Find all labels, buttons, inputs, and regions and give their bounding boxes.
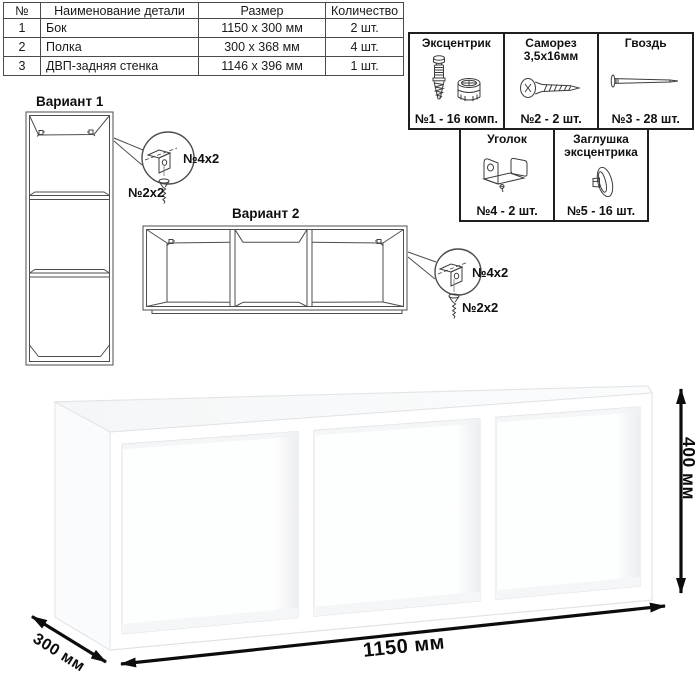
compartment-opening [496, 407, 640, 600]
nail-icon [608, 50, 684, 112]
cell-num: 3 [4, 57, 41, 76]
hardware-item-count: №3 - 28 шт. [612, 112, 680, 126]
hardware-panel-row2: Уголок №4 - 2 шт. Заглушка эксцентрика [459, 128, 649, 222]
hardware-item-title: Саморез 3,5х16мм [507, 37, 596, 63]
corner-bracket-icon [476, 146, 538, 204]
cam-bolt-icon [423, 50, 489, 112]
cell-num: 2 [4, 38, 41, 57]
hardware-item-title: Гвоздь [625, 37, 667, 50]
variant2-drawing [140, 222, 580, 332]
header-num: № [4, 3, 41, 19]
hardware-item-nail: Гвоздь №3 - 28 шт. [597, 32, 694, 130]
cell-num: 1 [4, 19, 41, 38]
table-header-row: № Наименование детали Размер Количество [4, 3, 404, 19]
variant2-callout-bracket-label: №4х2 [472, 265, 508, 280]
header-qty: Количество [326, 3, 404, 19]
table-row: 3 ДВП-задняя стенка 1146 x 396 мм 1 шт. [4, 57, 404, 76]
compartment-opening [122, 432, 298, 634]
hardware-item-cam: Эксцентрик [408, 32, 505, 130]
hardware-item-count: №2 - 2 шт. [520, 112, 581, 126]
cell-size: 1146 x 396 мм [199, 57, 326, 76]
callout-bracket-icon [438, 262, 468, 286]
hardware-item-title: Уголок [487, 133, 527, 146]
variant1-title: Вариант 1 [36, 94, 103, 109]
hardware-item-count: №5 - 16 шт. [567, 204, 635, 218]
screw-icon [519, 63, 583, 112]
hardware-item-screw: Саморез 3,5х16мм №2 - 2 шт. [503, 32, 600, 130]
compartment-opening [314, 418, 480, 616]
variant2-callout-screw-label: №2х2 [462, 300, 498, 315]
header-name: Наименование детали [41, 3, 199, 19]
assembly-instruction-sheet: № Наименование детали Размер Количество … [0, 0, 700, 690]
table-row: 2 Полка 300 x 368 мм 4 шт. [4, 38, 404, 57]
cell-name: Бок [41, 19, 199, 38]
cam-cap-icon [584, 159, 618, 204]
cell-name: Полка [41, 38, 199, 57]
parts-table: № Наименование детали Размер Количество … [3, 2, 404, 76]
variant2-title: Вариант 2 [232, 206, 299, 221]
hardware-item-cap: Заглушка эксцентрика №5 - 16 шт. [553, 128, 649, 222]
variant1-callout-bracket-label: №4х2 [183, 151, 219, 166]
callout-screw-icon [449, 294, 459, 319]
cell-size: 300 x 368 мм [199, 38, 326, 57]
variant1-callout-screw-label: №2х2 [128, 185, 164, 200]
table-row: 1 Бок 1150 x 300 мм 2 шт. [4, 19, 404, 38]
bracket-mark-icon [37, 130, 95, 137]
hardware-item-title: Заглушка эксцентрика [557, 133, 645, 159]
cabinet-3d-drawing [0, 372, 700, 690]
hardware-item-count: №1 - 16 комп. [415, 112, 498, 126]
header-size: Размер [199, 3, 326, 19]
callout-bracket-icon [145, 148, 177, 173]
cell-qty: 1 шт. [326, 57, 404, 76]
hardware-item-count: №4 - 2 шт. [476, 204, 537, 218]
hardware-item-bracket: Уголок №4 - 2 шт. [459, 128, 555, 222]
cell-name: ДВП-задняя стенка [41, 57, 199, 76]
hardware-panel-row1: Эксцентрик [408, 32, 694, 130]
height-dimension-label: 400 мм [678, 437, 699, 500]
cell-qty: 4 шт. [326, 38, 404, 57]
cell-size: 1150 x 300 мм [199, 19, 326, 38]
cell-qty: 2 шт. [326, 19, 404, 38]
hardware-item-title: Эксцентрик [422, 37, 491, 50]
